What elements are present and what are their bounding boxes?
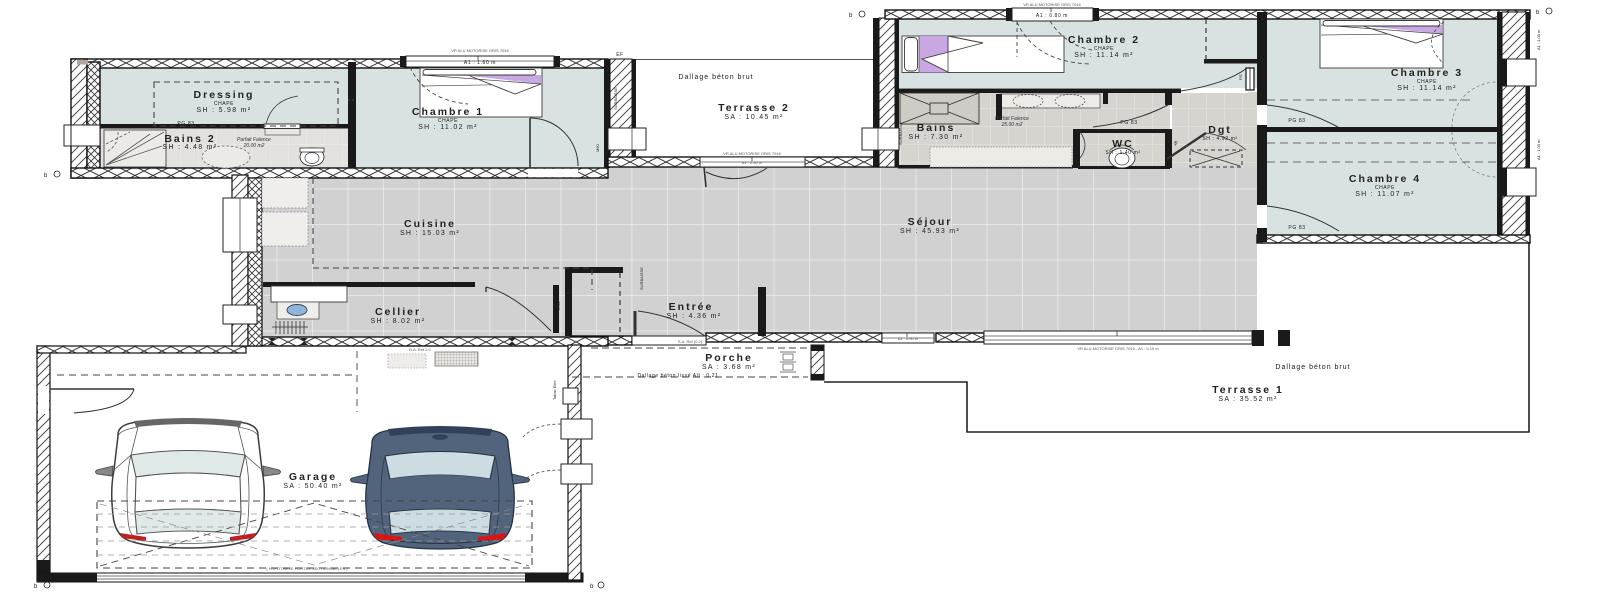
svg-text:SA : 50.40 m²: SA : 50.40 m² xyxy=(283,483,342,490)
svg-text:Chambre 3: Chambre 3 xyxy=(1391,67,1463,79)
svg-text:A1 : 0.80 m: A1 : 0.80 m xyxy=(1036,13,1068,19)
svg-text:( HYPOTHESE PORTES SECTIONNELL: ( HYPOTHESE PORTES SECTIONNELLES ) xyxy=(266,566,348,571)
svg-text:SH : 7.30 m²: SH : 7.30 m² xyxy=(909,134,964,141)
svg-text:Bains: Bains xyxy=(917,122,956,134)
svg-text:Chambre 2: Chambre 2 xyxy=(1068,34,1140,46)
svg-text:SH : 11.14 m²: SH : 11.14 m² xyxy=(1397,85,1457,92)
svg-text:VR ALU MOTORISE GRIS 7016: VR ALU MOTORISE GRIS 7016 xyxy=(1023,2,1081,7)
svg-text:VR ALU MOTORISE GRIS 7016: VR ALU MOTORISE GRIS 7016 xyxy=(723,151,781,156)
svg-text:SA : 10.45 m²: SA : 10.45 m² xyxy=(724,114,783,121)
svg-text:25.00 m2: 25.00 m2 xyxy=(1001,122,1023,128)
svg-text:Chambre 1: Chambre 1 xyxy=(412,106,484,118)
svg-text:SH : 1.40 m²: SH : 1.40 m² xyxy=(1105,150,1140,156)
svg-text:Cellier: Cellier xyxy=(375,306,421,318)
svg-text:B.A. Ref 2.0: B.A. Ref 2.0 xyxy=(409,347,431,352)
svg-text:Terrasse 2: Terrasse 2 xyxy=(718,102,790,114)
svg-text:Dallage béton brut: Dallage béton brut xyxy=(678,74,753,81)
svg-text:SH : 15.03 m²: SH : 15.03 m² xyxy=(400,230,460,237)
svg-text:20.00 m2: 20.00 m2 xyxy=(243,143,265,149)
svg-text:Cuisine: Cuisine xyxy=(404,218,456,230)
svg-text:PG 83: PG 83 xyxy=(177,121,194,127)
svg-text:SH : 4.92 m²: SH : 4.92 m² xyxy=(1202,136,1237,142)
svg-text:Dressing: Dressing xyxy=(194,89,255,101)
svg-text:EF: EF xyxy=(616,52,624,58)
svg-text:VR ALU MOTORISE GRIS 7016: VR ALU MOTORISE GRIS 7016 xyxy=(451,48,509,53)
svg-text:M60: M60 xyxy=(595,143,600,152)
svg-text:SURBAISSE: SURBAISSE xyxy=(639,267,644,290)
svg-text:A1 : 1.00 m: A1 : 1.00 m xyxy=(1536,29,1541,50)
svg-text:PG 83: PG 83 xyxy=(1288,225,1305,231)
svg-text:SH : 11.02 m²: SH : 11.02 m² xyxy=(418,124,478,131)
svg-text:Tabac Elec: Tabac Elec xyxy=(552,380,557,400)
svg-text:SURBAISSE: SURBAISSE xyxy=(898,122,903,145)
svg-text:SH : 11.14 m²: SH : 11.14 m² xyxy=(1074,52,1134,59)
svg-text:SA : 3.68 m²: SA : 3.68 m² xyxy=(702,364,756,371)
svg-text:A1 : 0.90 m: A1 : 0.90 m xyxy=(898,336,919,341)
svg-text:Porche: Porche xyxy=(705,352,753,364)
svg-text:SH : 5.98 m²: SH : 5.98 m² xyxy=(197,107,252,114)
svg-text:S.A. Ref (0.2): S.A. Ref (0.2) xyxy=(678,339,703,344)
svg-text:Dallage béton brut: Dallage béton brut xyxy=(1275,364,1350,371)
svg-text:SURBAISSE: SURBAISSE xyxy=(613,87,618,110)
svg-text:Séjour: Séjour xyxy=(908,216,953,228)
svg-text:A1 : 1.60 m: A1 : 1.60 m xyxy=(464,60,496,66)
svg-text:Dallage béton lissé Alt : 0.2: Dallage béton lissé Alt : 0.21 xyxy=(637,373,718,379)
svg-text:SH : 4.48 m²: SH : 4.48 m² xyxy=(163,144,218,151)
svg-text:SH : 4.36 m²: SH : 4.36 m² xyxy=(667,313,722,320)
svg-text:PG 83: PG 83 xyxy=(1288,118,1305,124)
svg-text:SH : 45.93 m²: SH : 45.93 m² xyxy=(900,228,960,235)
svg-text:Dgt: Dgt xyxy=(1208,124,1232,136)
svg-text:Entrée: Entrée xyxy=(669,301,714,313)
svg-text:A1 : 1.00 m: A1 : 1.00 m xyxy=(1536,139,1541,160)
svg-text:VR ALU MOTORISE GRIS 7016 - A1: VR ALU MOTORISE GRIS 7016 - A1 : 5.10 m xyxy=(1077,346,1159,351)
svg-text:SA : 35.52 m²: SA : 35.52 m² xyxy=(1218,396,1277,403)
svg-text:Terrasse 1: Terrasse 1 xyxy=(1212,384,1284,396)
svg-text:PG 83: PG 83 xyxy=(1120,120,1137,126)
svg-text:Garage: Garage xyxy=(289,471,337,483)
svg-text:A1 : 2.40 m: A1 : 2.40 m xyxy=(742,160,763,165)
svg-text:D.90: D.90 xyxy=(556,301,561,310)
svg-text:WC: WC xyxy=(1112,138,1134,150)
svg-text:PG: PG xyxy=(1238,74,1243,80)
svg-text:SH : 8.02 m²: SH : 8.02 m² xyxy=(371,318,426,325)
svg-text:SH : 11.07 m²: SH : 11.07 m² xyxy=(1355,191,1415,198)
svg-text:Chambre 4: Chambre 4 xyxy=(1349,173,1421,185)
